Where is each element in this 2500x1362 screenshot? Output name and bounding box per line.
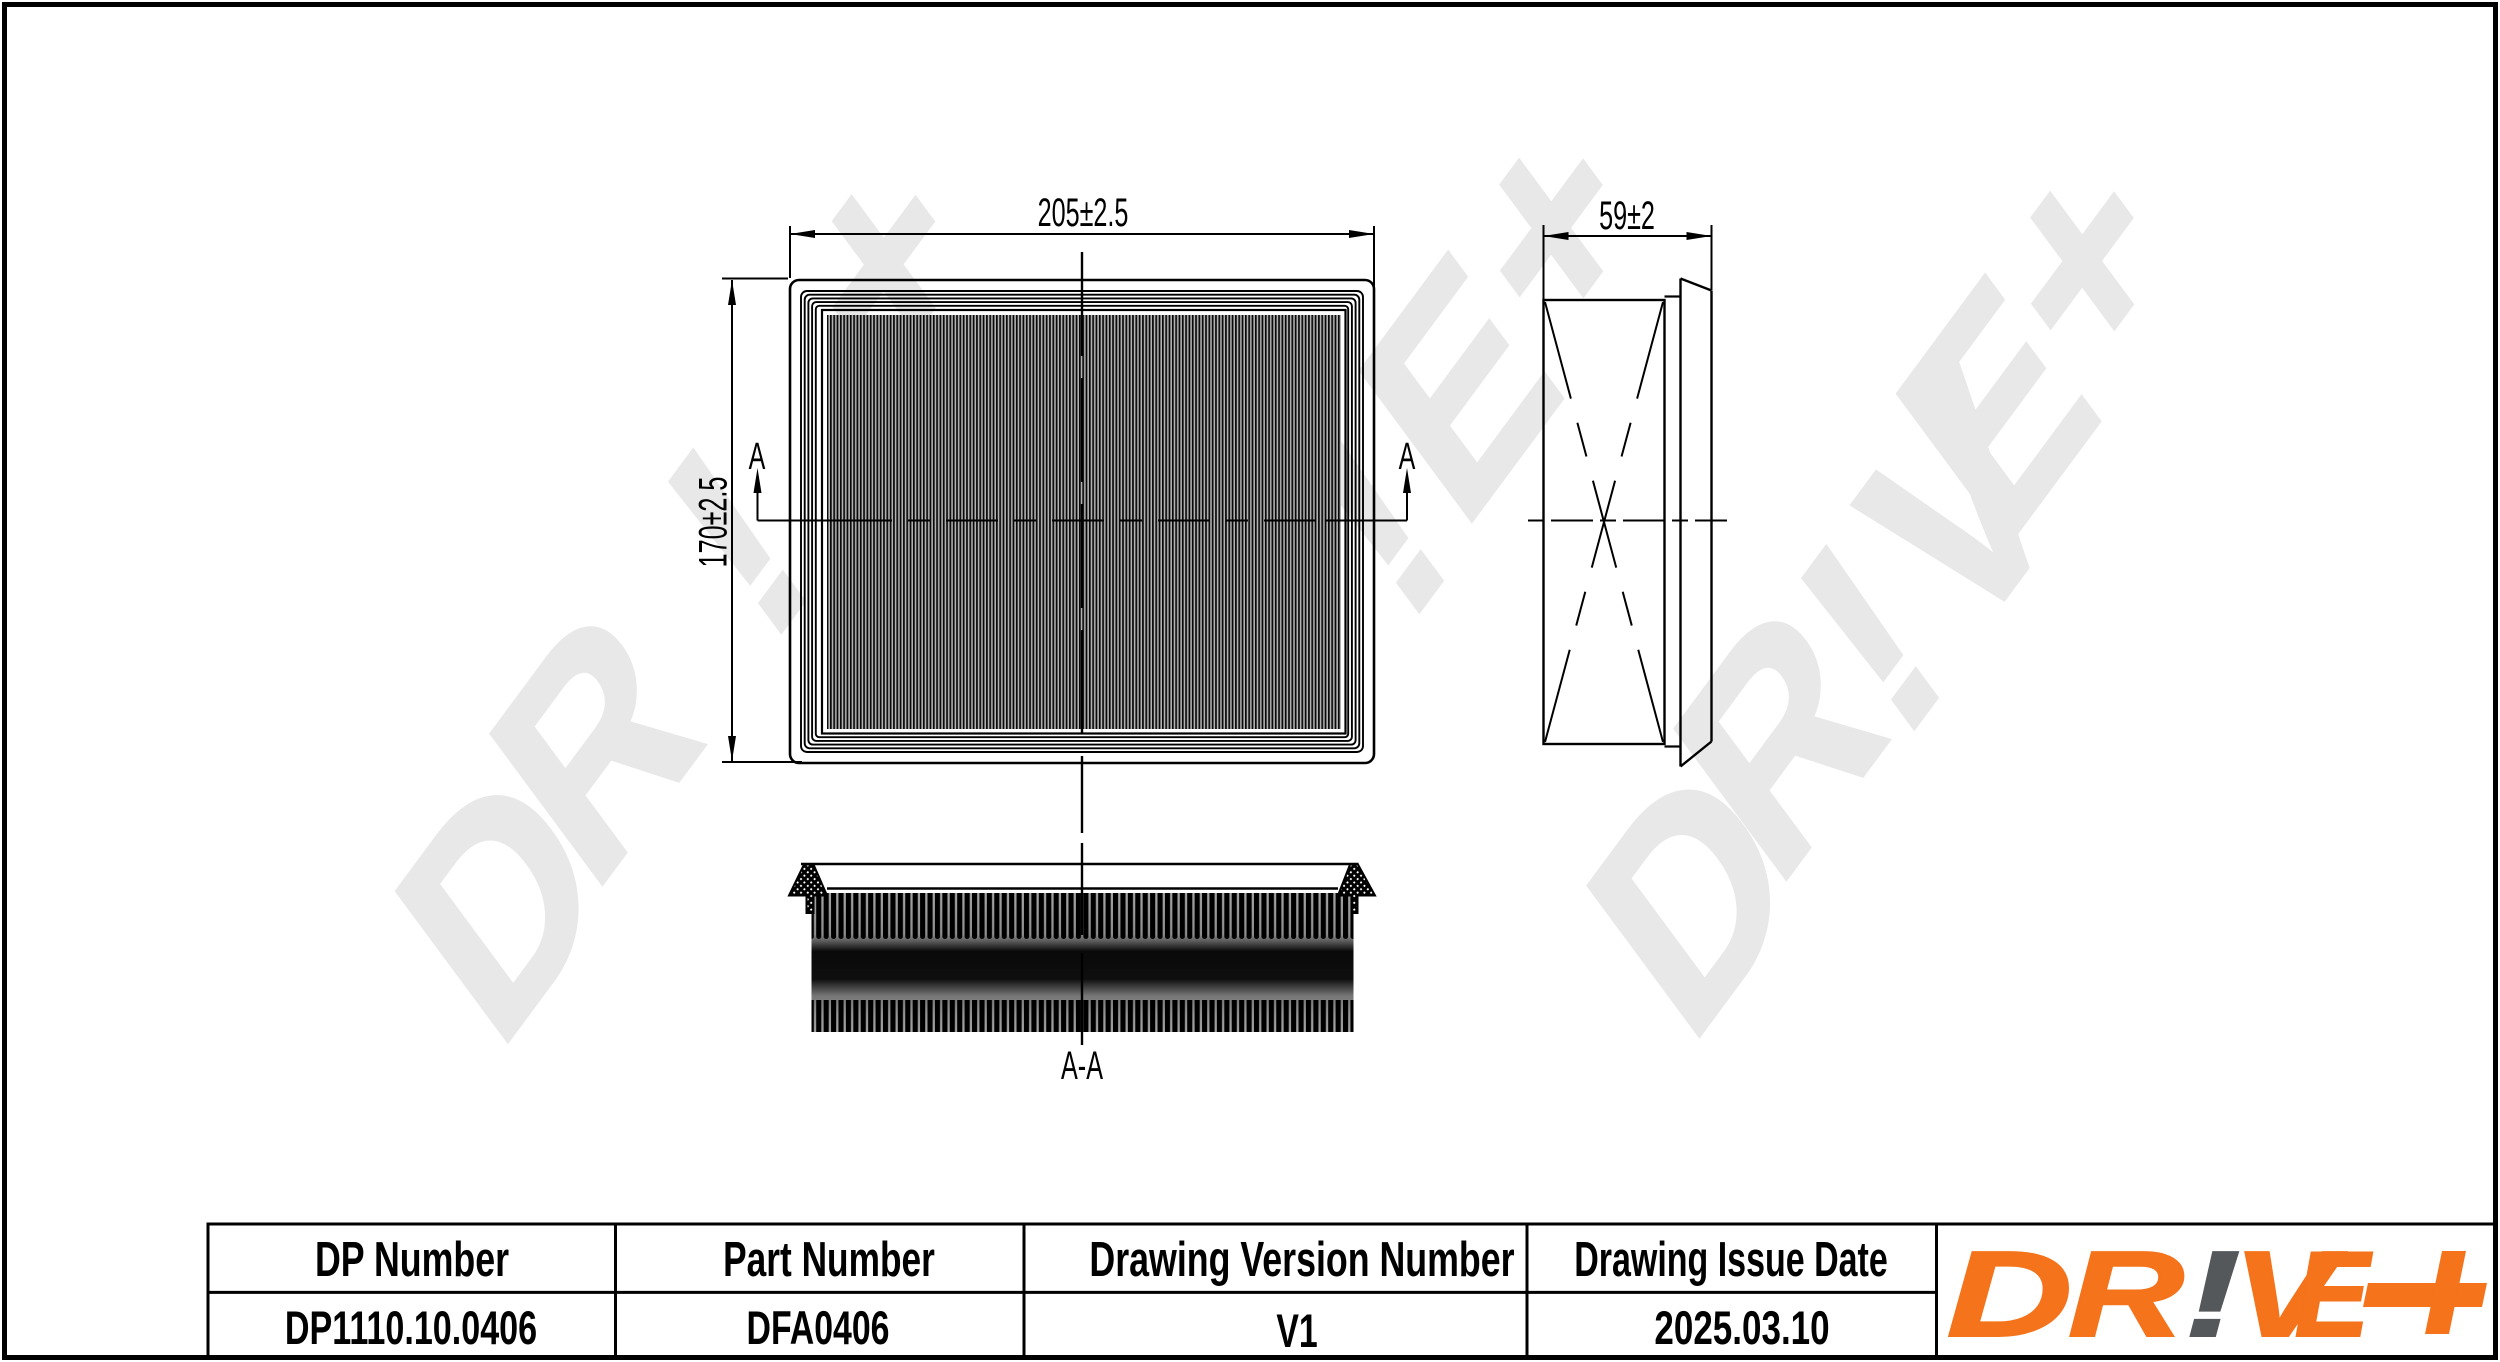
- svg-text:E: E: [2295, 1226, 2374, 1362]
- svg-text:170±2.5: 170±2.5: [692, 477, 736, 568]
- svg-text:Drawing Issue Date: Drawing Issue Date: [1574, 1232, 1888, 1287]
- svg-text:V1: V1: [1276, 1305, 1317, 1358]
- svg-text:Part Number: Part Number: [723, 1232, 935, 1287]
- svg-text:Drawing Version Number: Drawing Version Number: [1089, 1233, 1514, 1288]
- svg-text:59±2: 59±2: [1599, 194, 1655, 238]
- svg-text:DP1110.10.0406: DP1110.10.0406: [285, 1302, 537, 1355]
- svg-text:DP Number: DP Number: [315, 1233, 509, 1288]
- svg-text:A-A: A-A: [1061, 1044, 1104, 1088]
- svg-text:!: !: [620, 382, 855, 699]
- svg-text:A: A: [1399, 435, 1416, 477]
- svg-text:205±2.5: 205±2.5: [1038, 191, 1129, 235]
- svg-text:DFA0406: DFA0406: [747, 1302, 890, 1355]
- svg-text:A: A: [749, 435, 766, 477]
- svg-text:2025.03.10: 2025.03.10: [1654, 1301, 1829, 1354]
- svg-text:R: R: [2068, 1227, 2184, 1362]
- svg-text:D: D: [1947, 1226, 2073, 1362]
